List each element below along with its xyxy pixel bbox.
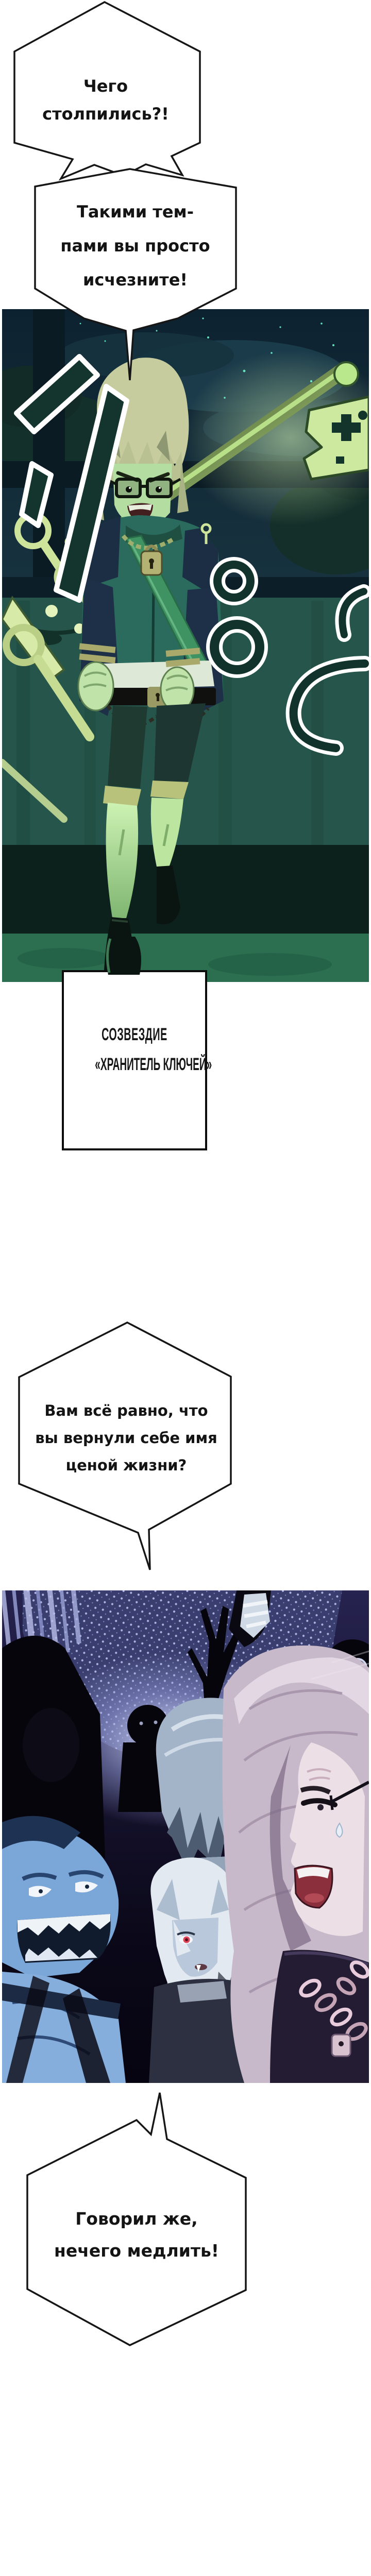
speech-line: Говорил же, bbox=[75, 2203, 197, 2235]
panel-2-illustration bbox=[2, 1590, 369, 2083]
webtoon-page: Чего столпились?! Такими тем- пами вы пр… bbox=[0, 0, 371, 2576]
speech-line: Вам всё равно, что bbox=[44, 1397, 208, 1425]
speech-bubble-2-text: Такими тем- пами вы просто исчезните! bbox=[36, 195, 234, 297]
key-bit bbox=[304, 397, 369, 479]
constellation-title-line2: «ХРАНИТЕЛЬ КЛЮЧЕЙ» bbox=[95, 1055, 174, 1075]
speech-line: столпились?! bbox=[42, 100, 169, 128]
speech-line: Такими тем- bbox=[77, 195, 194, 229]
speech-line: вы вернули себе имя bbox=[35, 1425, 217, 1452]
speech-line: нечего медлить! bbox=[54, 2235, 219, 2267]
speech-bubble-3-text: Вам всё равно, что вы вернули себе имя ц… bbox=[23, 1397, 229, 1479]
speech-bubble-4-text: Говорил же, нечего медлить! bbox=[31, 2203, 242, 2267]
boot-overlap-icon bbox=[98, 937, 155, 978]
caption-box: СОЗВЕЗДИЕ «ХРАНИТЕЛЬ КЛЮЧЕЙ» bbox=[62, 970, 207, 1150]
speech-bubble-1-text: Чего столпились?! bbox=[15, 72, 196, 128]
speech-line: ценой жизни? bbox=[66, 1452, 187, 1479]
speech-line: исчезните! bbox=[83, 263, 188, 297]
speech-line: пами вы просто bbox=[60, 229, 210, 263]
panel-1-illustration bbox=[2, 309, 369, 982]
constellation-title-line1: СОЗВЕЗДИЕ bbox=[94, 1025, 176, 1045]
speech-line: Чего bbox=[83, 72, 128, 100]
foreground-blond-character bbox=[223, 1646, 369, 2083]
